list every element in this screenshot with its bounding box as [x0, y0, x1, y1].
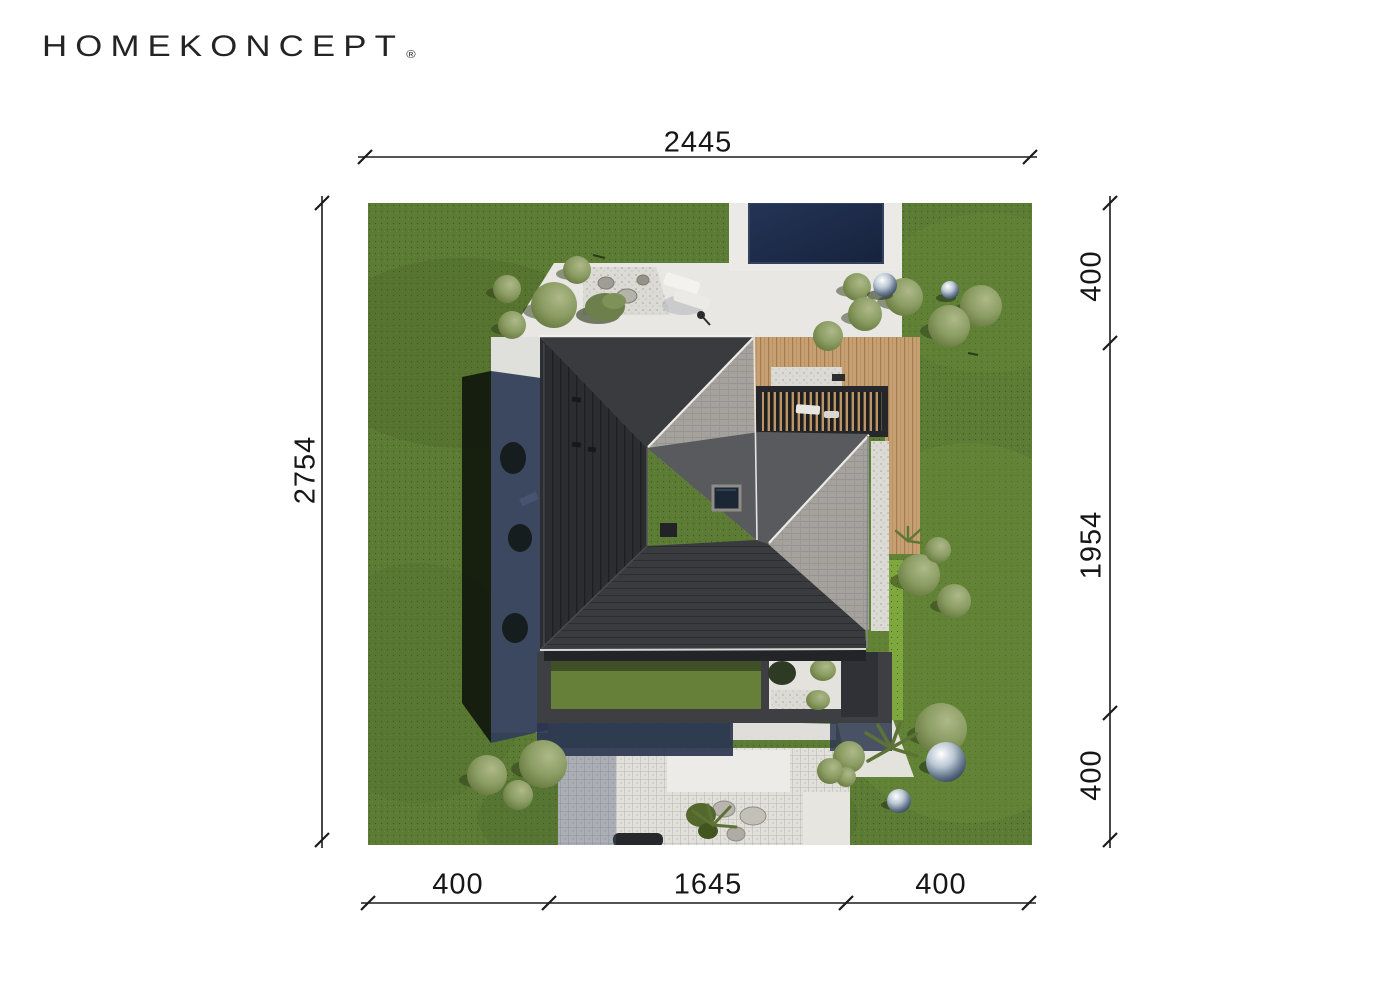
garden-sphere — [873, 273, 897, 297]
deck-gravel-strip — [771, 367, 842, 387]
deck-edge-bush — [813, 321, 843, 351]
garden-sphere-large — [926, 742, 966, 782]
dim-left-label: 2754 — [290, 436, 323, 505]
dim-right-label-3: 400 — [1076, 749, 1109, 800]
bench — [832, 374, 845, 381]
shaded-bush — [768, 661, 796, 685]
pool-water — [748, 203, 884, 264]
skylight — [713, 486, 740, 510]
dim-right-label-2: 1954 — [1076, 511, 1109, 580]
pergola-furniture — [796, 404, 821, 415]
garden-sphere-small — [887, 789, 911, 813]
brand-logo-text: HOMEKONCEPT — [42, 30, 404, 63]
pool — [729, 203, 902, 271]
site-plan-page: HOMEKONCEPT® — [0, 0, 1400, 989]
brand-logo: HOMEKONCEPT® — [42, 30, 416, 64]
dim-bottom-label-1: 400 — [432, 869, 483, 902]
garden-sphere — [941, 281, 959, 299]
dim-bottom-label-2: 1645 — [674, 869, 743, 902]
dim-top-label: 2445 — [664, 127, 733, 160]
chimney — [660, 523, 677, 537]
site-aerial-render — [368, 203, 1032, 845]
gravel-strip — [871, 441, 889, 631]
dim-right-label-1: 400 — [1076, 250, 1109, 301]
registered-mark: ® — [406, 49, 415, 61]
car — [613, 833, 663, 845]
canopy-frame — [537, 652, 892, 723]
dim-bottom-label-3: 400 — [915, 869, 966, 902]
pergola — [759, 389, 885, 434]
